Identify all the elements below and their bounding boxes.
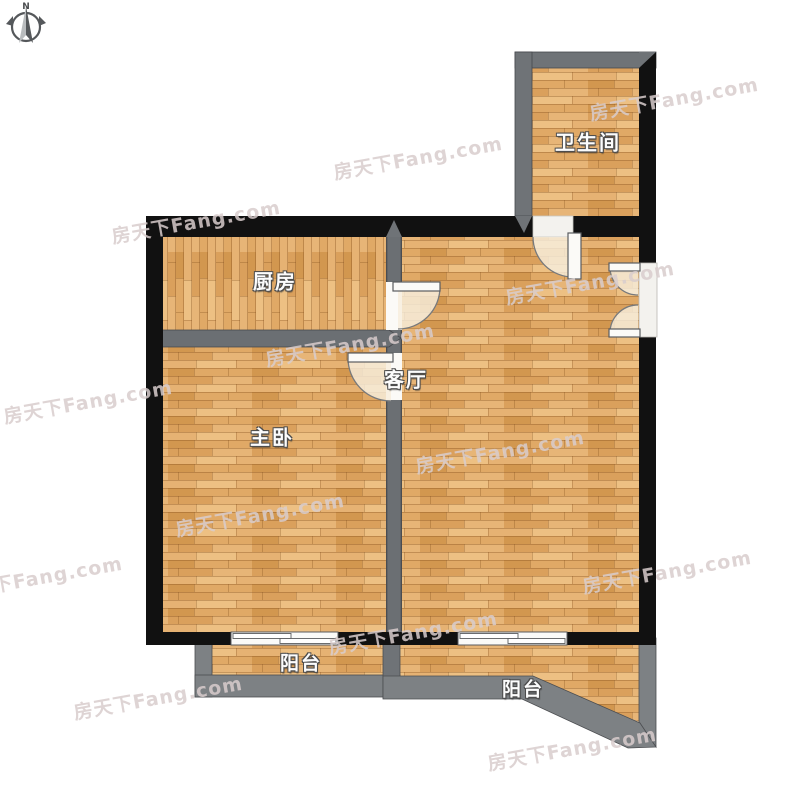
floor-master-bedroom [163, 346, 386, 632]
room-label-balcony-right: 阳台 [502, 675, 544, 702]
room-label-living-room: 客厅 [384, 364, 428, 393]
bathroom-wall-west [515, 52, 532, 216]
room-label-balcony-left: 阳台 [280, 649, 322, 676]
bedroom-window-sash-left [233, 634, 291, 639]
compass: N [6, 2, 46, 43]
room-label-master-bedroom: 主卧 [250, 422, 294, 451]
entry-door-leaf-bottom [609, 329, 640, 337]
compass-arrow-left [6, 16, 13, 26]
bathroom-wall-north [515, 52, 656, 68]
compass-north-label: N [22, 2, 30, 12]
room-label-bathroom: 卫生间 [555, 127, 621, 156]
room-label-kitchen: 厨房 [253, 266, 297, 295]
bathroom-door-threshold [533, 216, 573, 237]
wall-west [146, 216, 163, 645]
compass-arrow-right [39, 16, 46, 26]
kitchen-door-leaf [393, 282, 440, 291]
wall-east [639, 52, 656, 645]
floorplan-canvas: N 卫生间 厨房 客厅 主卧 阳台 阳台 房天下Fang.com 房天下Fang… [0, 0, 800, 800]
living-door-sash-right [508, 639, 565, 644]
